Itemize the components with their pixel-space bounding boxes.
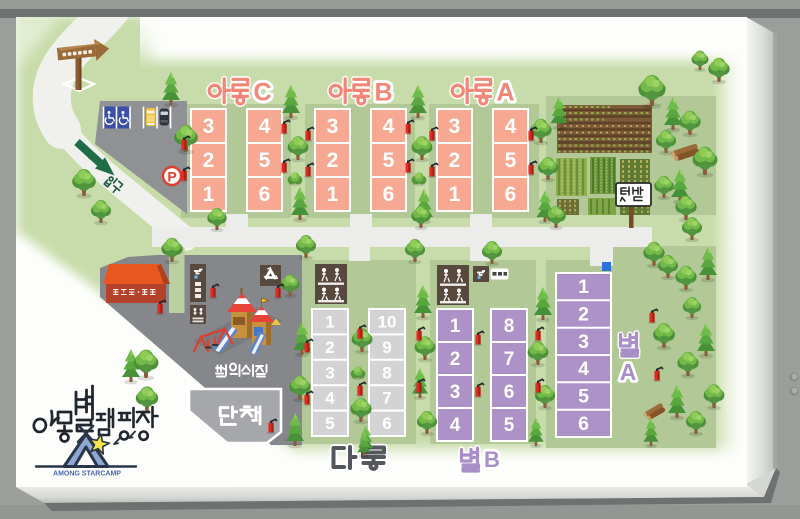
svg-text:5: 5 bbox=[325, 414, 334, 433]
svg-text:1: 1 bbox=[203, 183, 215, 206]
svg-text:5: 5 bbox=[505, 149, 517, 172]
svg-text:3: 3 bbox=[578, 331, 589, 353]
svg-text:8: 8 bbox=[382, 363, 391, 382]
svg-text:10: 10 bbox=[378, 313, 397, 332]
svg-text:7: 7 bbox=[504, 349, 515, 370]
svg-text:1: 1 bbox=[325, 313, 334, 332]
svg-text:1: 1 bbox=[327, 183, 339, 206]
svg-text:4: 4 bbox=[578, 358, 589, 380]
svg-text:5: 5 bbox=[504, 415, 515, 436]
svg-text:4: 4 bbox=[325, 389, 335, 408]
svg-text:B: B bbox=[374, 79, 392, 107]
svg-text:6: 6 bbox=[382, 414, 391, 433]
svg-text:9: 9 bbox=[382, 338, 391, 357]
svg-text:5: 5 bbox=[578, 386, 589, 408]
svg-text:2: 2 bbox=[578, 304, 589, 326]
svg-text:3: 3 bbox=[203, 115, 215, 138]
svg-text:6: 6 bbox=[505, 183, 517, 206]
svg-text:2: 2 bbox=[449, 149, 461, 172]
svg-text:2: 2 bbox=[450, 349, 461, 370]
svg-text:3: 3 bbox=[449, 115, 461, 138]
svg-text:8: 8 bbox=[504, 316, 515, 337]
svg-text:7: 7 bbox=[382, 389, 391, 408]
svg-text:6: 6 bbox=[578, 413, 589, 435]
svg-text:3: 3 bbox=[450, 382, 461, 403]
svg-text:4: 4 bbox=[505, 115, 517, 138]
svg-text:6: 6 bbox=[383, 183, 395, 206]
svg-text:B: B bbox=[484, 447, 500, 472]
svg-text:A: A bbox=[496, 79, 514, 107]
svg-text:P: P bbox=[167, 169, 176, 185]
svg-text:1: 1 bbox=[449, 183, 461, 206]
svg-text:4: 4 bbox=[450, 415, 461, 436]
svg-text:5: 5 bbox=[383, 149, 395, 172]
svg-text:A: A bbox=[620, 359, 637, 385]
svg-text:4: 4 bbox=[383, 115, 395, 138]
svg-text:AMONG STARCAMP: AMONG STARCAMP bbox=[53, 471, 121, 478]
svg-text:6: 6 bbox=[259, 183, 271, 206]
svg-text:2: 2 bbox=[325, 338, 334, 357]
svg-text:C: C bbox=[253, 79, 271, 107]
svg-text:3: 3 bbox=[325, 363, 334, 382]
svg-text:2: 2 bbox=[327, 149, 339, 172]
svg-text:1: 1 bbox=[578, 276, 589, 298]
svg-text:2: 2 bbox=[203, 149, 215, 172]
svg-text:4: 4 bbox=[259, 115, 271, 138]
svg-text:3: 3 bbox=[327, 115, 339, 138]
svg-text:1: 1 bbox=[450, 316, 461, 337]
svg-text:5: 5 bbox=[259, 149, 271, 172]
svg-text:6: 6 bbox=[504, 382, 515, 403]
